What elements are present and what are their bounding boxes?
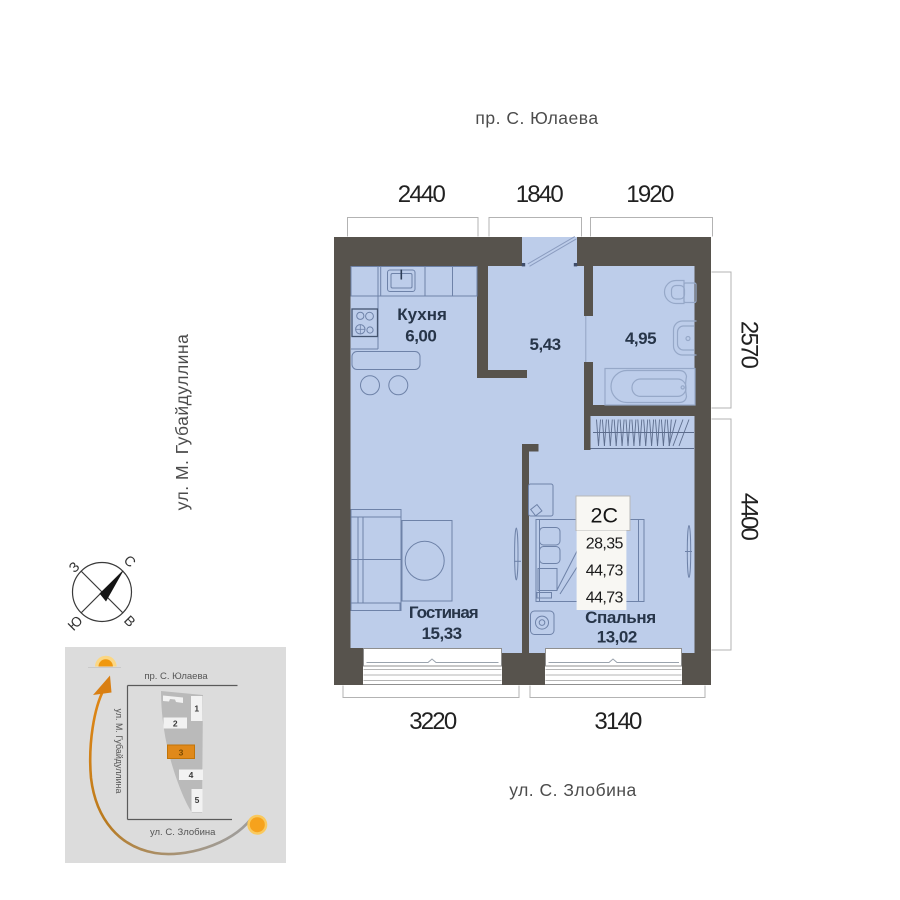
svg-text:5: 5	[195, 795, 200, 805]
svg-text:4400: 4400	[736, 493, 763, 541]
svg-text:2: 2	[173, 719, 178, 729]
svg-text:6,00: 6,00	[405, 327, 436, 346]
svg-text:пр. С. Юлаева: пр. С. Юлаева	[475, 108, 598, 128]
svg-text:Спальня: Спальня	[585, 608, 656, 627]
svg-text:1840: 1840	[516, 181, 564, 208]
svg-text:1920: 1920	[626, 181, 674, 208]
svg-text:44,73: 44,73	[586, 590, 624, 607]
svg-text:15,33: 15,33	[422, 624, 462, 643]
svg-text:2С: 2С	[591, 504, 618, 528]
svg-text:2440: 2440	[398, 181, 446, 208]
svg-text:3: 3	[179, 748, 184, 758]
svg-text:4: 4	[189, 770, 194, 780]
svg-text:5,43: 5,43	[530, 335, 561, 354]
svg-text:1: 1	[194, 704, 199, 714]
svg-text:13,02: 13,02	[597, 628, 637, 647]
svg-text:пр. С. Юлаева: пр. С. Юлаева	[144, 671, 208, 682]
svg-text:ул. С. Злобина: ул. С. Злобина	[150, 827, 216, 838]
svg-text:2570: 2570	[736, 321, 763, 369]
svg-text:ул. М. Губайдуллина: ул. М. Губайдуллина	[114, 709, 124, 794]
svg-text:44,73: 44,73	[586, 563, 624, 580]
svg-text:Гостиная: Гостиная	[409, 603, 478, 622]
svg-text:28,35: 28,35	[586, 536, 624, 553]
svg-text:3140: 3140	[594, 708, 642, 735]
svg-text:ул. С. Злобина: ул. С. Злобина	[509, 780, 637, 800]
svg-text:ул. М. Губайдуллина: ул. М. Губайдуллина	[172, 334, 192, 511]
svg-text:3220: 3220	[409, 708, 457, 735]
svg-text:4,95: 4,95	[625, 329, 656, 348]
svg-text:Кухня: Кухня	[397, 305, 447, 324]
